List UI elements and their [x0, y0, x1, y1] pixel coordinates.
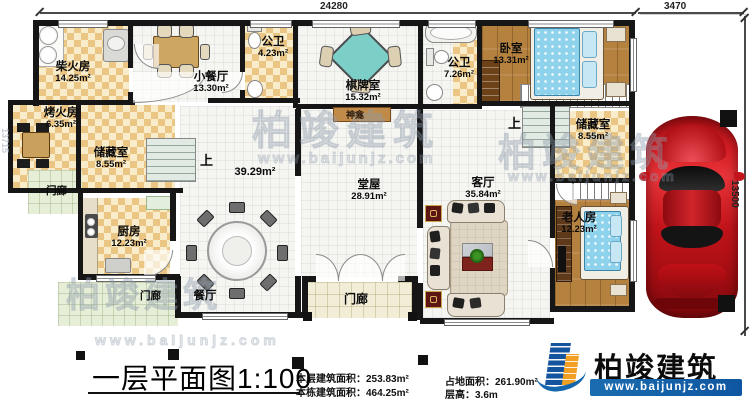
nightstand [606, 27, 626, 42]
sofa-pillow [469, 297, 481, 308]
chair [179, 24, 194, 38]
room-area: 6.35m² [25, 120, 97, 131]
lazy-susan [222, 236, 252, 266]
dimension-line-top-garage [638, 12, 744, 14]
chair [277, 245, 288, 261]
window [444, 319, 530, 326]
sofa-pillow [430, 265, 440, 276]
room-label-bath1: 公卫 4.23m² [250, 36, 296, 60]
room-area: 13.31m² [483, 56, 539, 67]
wall [128, 20, 133, 68]
room-label-living: 客厅 35.84m² [450, 177, 516, 201]
dimension-label-right: 13500 [729, 180, 740, 208]
porch-label: 门廊 [140, 288, 161, 303]
chair [229, 202, 245, 213]
nightstand [610, 192, 627, 204]
carport-column [720, 110, 737, 127]
sofa-pillow [468, 202, 480, 213]
window [528, 20, 614, 28]
dimension-line-top-main [40, 12, 636, 14]
room-area: 8.55m² [78, 160, 144, 171]
sofa-pillow [429, 230, 440, 242]
room-area: 39.29m² [222, 166, 288, 179]
room-area: 12.23m² [98, 239, 160, 250]
wall [170, 193, 176, 241]
room-label-bath2: 公卫 7.26m² [435, 57, 483, 81]
room-label-kitchen: 厨房 12.23m² [98, 226, 160, 250]
bed-mattress [534, 28, 580, 96]
stairs-up-label: 上 [200, 150, 213, 169]
room-label-dining-area: 39.29m² [222, 166, 288, 179]
room-label-storage-left: 储藏室 8.55m² [78, 147, 144, 171]
pillow [582, 61, 597, 88]
room-area: 12.23m² [542, 225, 616, 236]
window [96, 275, 156, 282]
carport-column [718, 295, 735, 312]
stove-pot [39, 26, 58, 45]
window [312, 20, 400, 28]
car-roof [663, 190, 721, 228]
dimension-label-top-garage: 3470 [664, 1, 686, 12]
drawing-title: 一层平面图1:100 [92, 357, 312, 397]
room-label-small-dining: 小餐厅 13.30m² [178, 71, 244, 95]
fire-table [22, 132, 50, 158]
stat-building-area: 本栋建筑面积：464.25m² [296, 384, 409, 399]
chair [157, 24, 172, 38]
room-label-dining-name: 餐厅 [184, 290, 226, 303]
wall [418, 20, 423, 110]
kitchen-sink [105, 258, 131, 273]
room-label-bedroom: 卧室 13.31m² [483, 43, 539, 67]
wall [550, 306, 635, 312]
nightstand [606, 82, 626, 97]
room-label-firewood: 柴火房 14.25m² [38, 61, 108, 85]
room-label-main-hall: 堂屋 28.91m² [336, 179, 402, 203]
dimension-label-left: 13715 [0, 128, 10, 153]
speaker-grille [430, 210, 437, 217]
column-marker [76, 351, 85, 360]
room-area: 8.55m² [560, 132, 626, 143]
wall [293, 20, 298, 108]
column-marker [418, 355, 428, 365]
room-name: 餐厅 [184, 290, 226, 303]
window [630, 38, 637, 92]
car-mirror-left [639, 172, 650, 181]
window [202, 313, 288, 320]
room-label-fireheating: 烤火房 6.35m² [25, 107, 97, 131]
chair [17, 159, 30, 168]
wash-basin [426, 84, 443, 101]
wall [550, 178, 631, 183]
sofa-pillow [451, 202, 463, 213]
dimension-label-top-main: 24280 [320, 1, 348, 12]
sofa-pillow [484, 203, 495, 213]
room-area: 28.91m² [336, 192, 402, 203]
wash-basin [247, 80, 263, 98]
burner [87, 228, 95, 236]
brand-site: www.baijunjz.com [590, 379, 742, 396]
window [630, 220, 637, 282]
floor-plan-canvas: 24280 3470 13500 13715 [0, 0, 750, 407]
wall [550, 106, 555, 182]
stairs-left [146, 138, 196, 182]
pillow [610, 241, 622, 263]
sofa-pillow [429, 248, 440, 260]
window [428, 20, 476, 28]
chair [186, 245, 197, 261]
wall [8, 188, 183, 193]
burner [87, 218, 95, 226]
room-area: 15.32m² [328, 93, 398, 104]
window [250, 20, 292, 28]
pillow [582, 31, 597, 58]
stat-floor-area: 本层建筑面积：253.83m² [296, 370, 409, 385]
chair [387, 45, 402, 67]
room-area: 35.84m² [450, 190, 516, 201]
nightstand [610, 284, 627, 296]
wall [420, 104, 482, 109]
chair [200, 44, 210, 60]
room-area: 7.26m² [435, 70, 483, 81]
kitchen-cabinet [146, 196, 172, 210]
chair [36, 159, 49, 168]
tv [558, 246, 566, 272]
car-top-view [646, 116, 738, 318]
wall [240, 20, 245, 72]
room-area: 13.30m² [178, 84, 244, 95]
room-label-elderly: 老人房 12.23m² [542, 212, 616, 236]
room-label-storage-right: 储藏室 8.55m² [560, 119, 626, 143]
brand-logo-icon [536, 341, 590, 397]
wall [78, 193, 83, 279]
room-area: 4.23m² [250, 49, 296, 60]
stat-floor-height: 层高：3.6m [445, 386, 498, 401]
toilet-tank [426, 48, 434, 66]
speaker-grille [430, 296, 437, 303]
porch-column [303, 312, 312, 321]
logo-swoosh [534, 358, 587, 394]
porch-label: 门廊 [344, 290, 368, 307]
stairs-up-label: 上 [508, 113, 521, 132]
watermark-site: www.baijunjz.com [95, 332, 280, 348]
window [58, 20, 108, 28]
wall [295, 109, 301, 176]
title-underline [88, 392, 300, 394]
wall [33, 100, 135, 105]
wall [208, 98, 300, 103]
porch-label: 门廊 [46, 183, 67, 198]
sink-basin [107, 36, 125, 51]
wall [417, 109, 423, 228]
room-area: 14.25m² [38, 74, 108, 85]
porch-column [408, 312, 417, 321]
room-label-chess: 棋牌室 15.32m² [328, 80, 398, 104]
shrine-label: 神龛 [346, 108, 364, 121]
chair [229, 288, 245, 299]
sofa-pillow [452, 297, 465, 309]
